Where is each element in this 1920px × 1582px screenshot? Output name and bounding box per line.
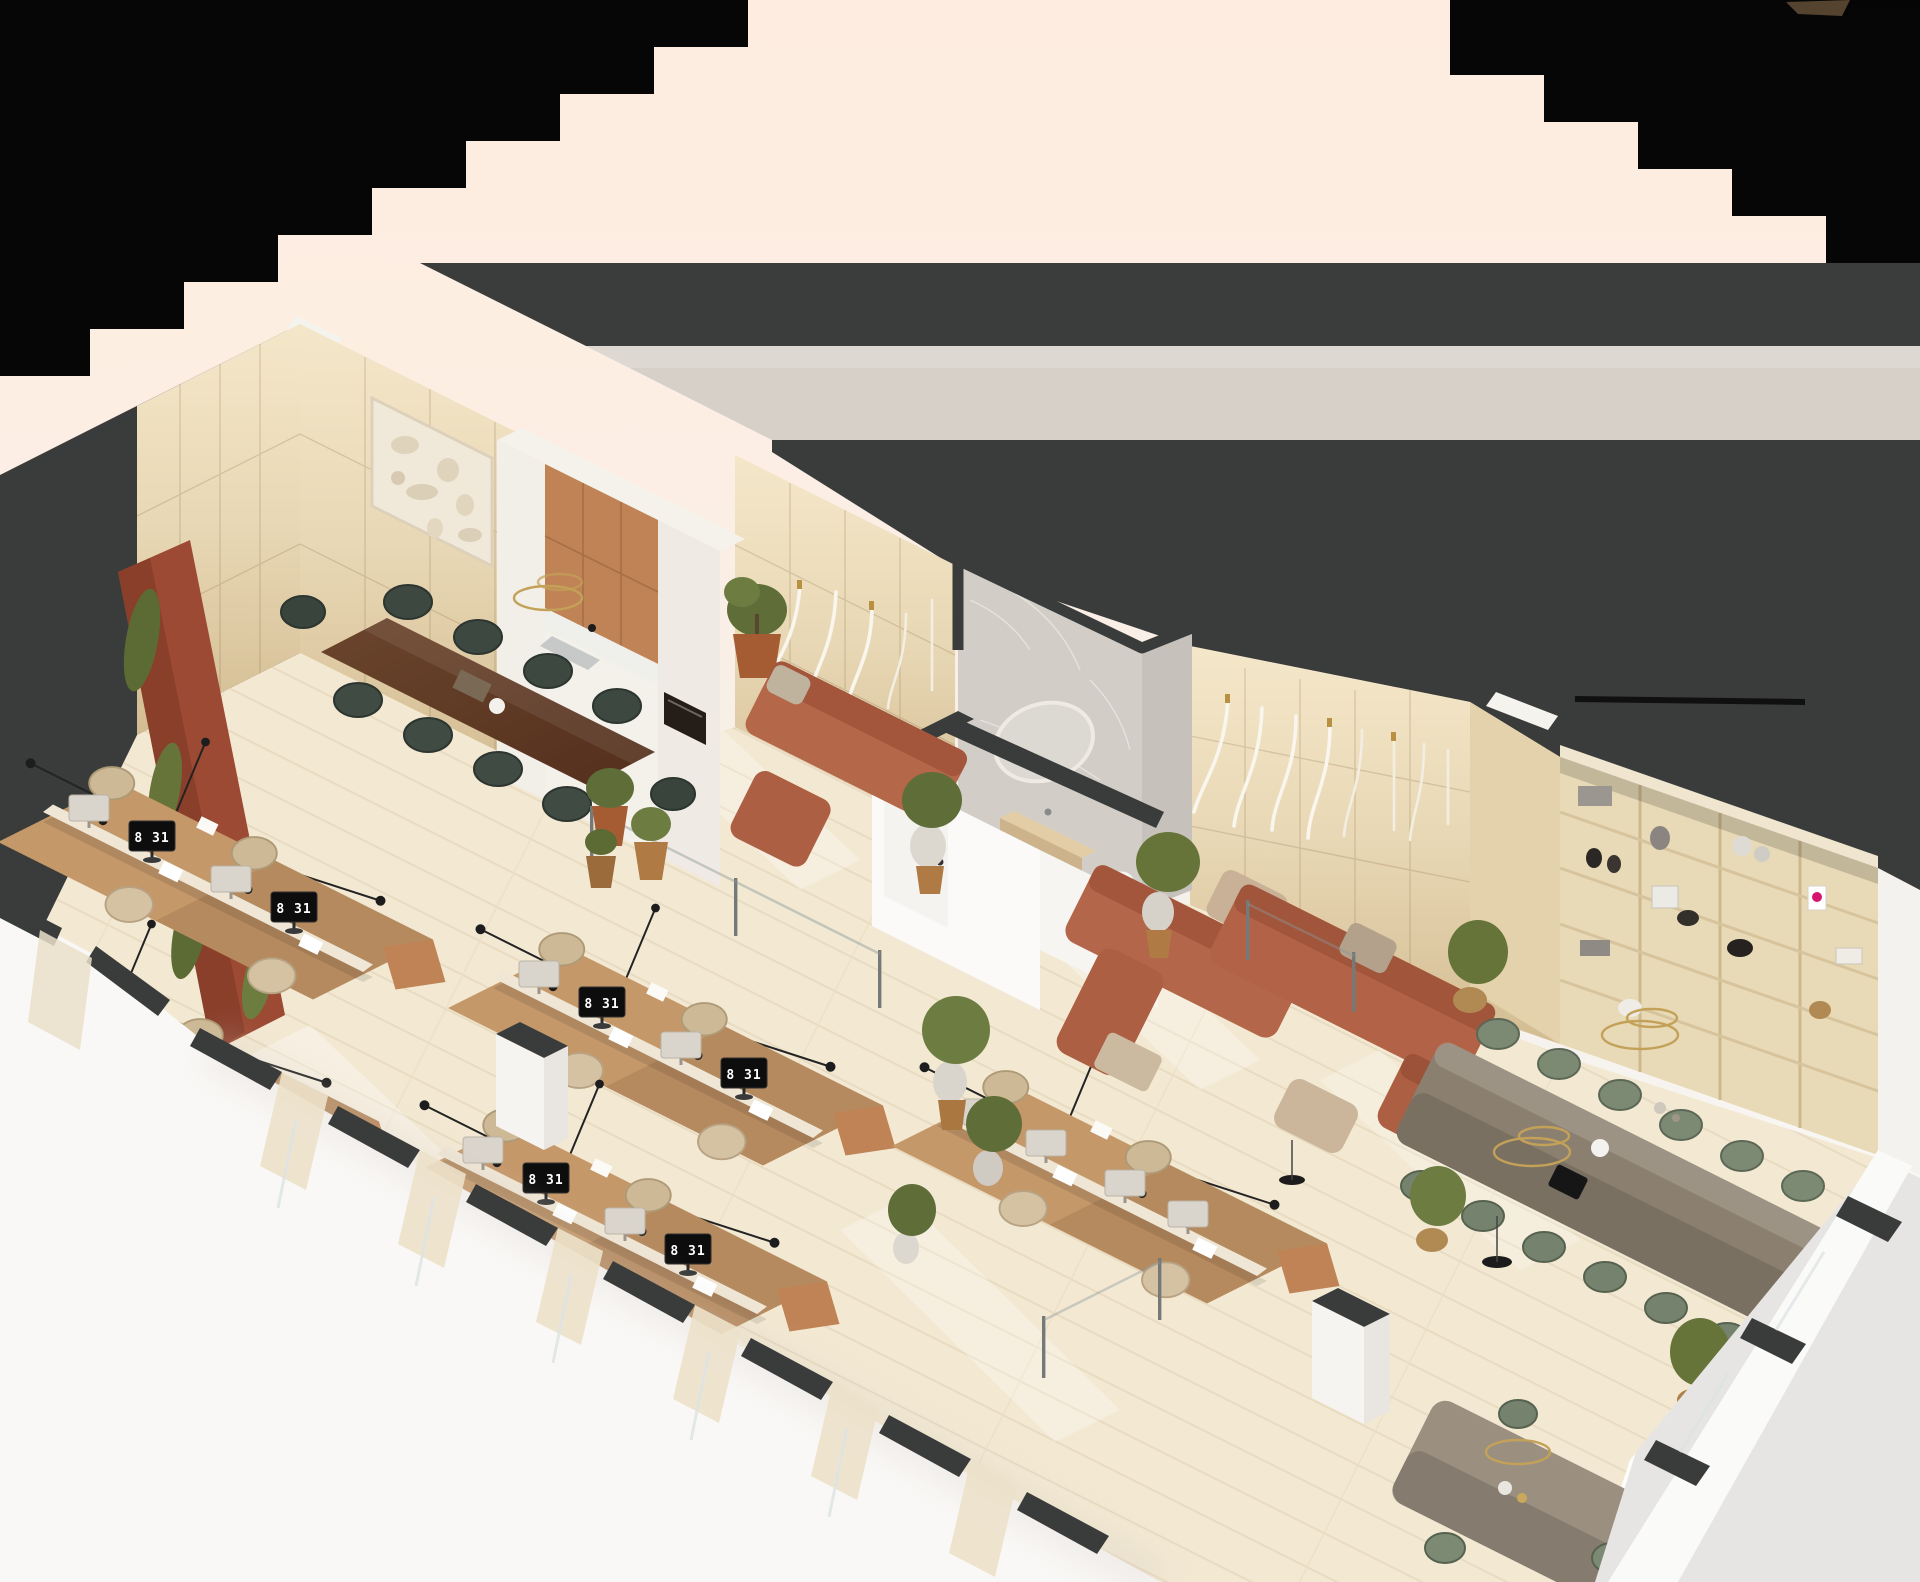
white-pedestal bbox=[496, 1022, 568, 1150]
vanity-faucet bbox=[1045, 809, 1052, 816]
svg-text:8 31: 8 31 bbox=[584, 997, 619, 1012]
svg-text:8 31: 8 31 bbox=[276, 902, 311, 917]
beam-line bbox=[1575, 699, 1805, 702]
svg-text:8 31: 8 31 bbox=[726, 1068, 761, 1083]
floorplan-render: 8 31 8 31 8 31 8 31 8 31 8 31 8 31 8 31 bbox=[0, 0, 1920, 1582]
sphere-lamp bbox=[1591, 1139, 1609, 1157]
table-lamp bbox=[489, 698, 505, 714]
svg-text:8 31: 8 31 bbox=[670, 1244, 705, 1259]
faucet bbox=[588, 624, 596, 632]
svg-text:8 31: 8 31 bbox=[528, 1173, 563, 1188]
isometric-office-scene: 8 31 8 31 8 31 8 31 8 31 8 31 8 31 8 31 bbox=[0, 0, 1920, 1582]
svg-text:8 31: 8 31 bbox=[134, 831, 169, 846]
white-pedestal bbox=[1312, 1288, 1390, 1424]
